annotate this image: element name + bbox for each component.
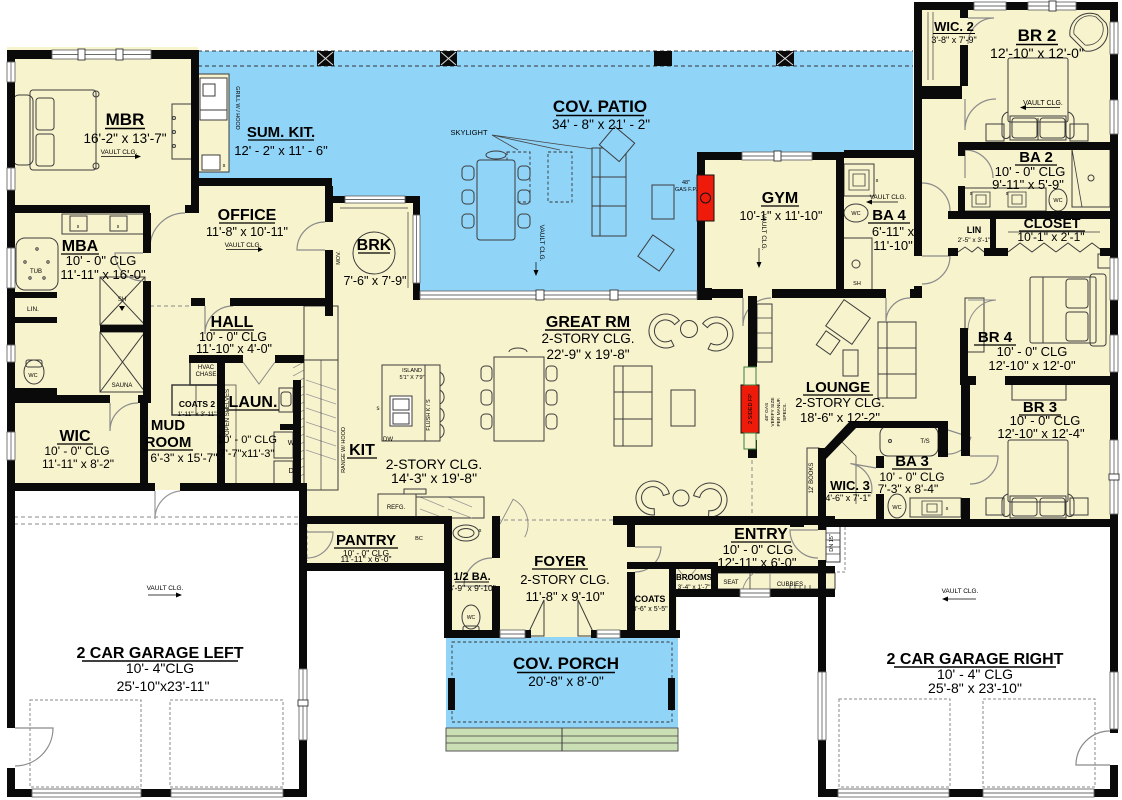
- svg-text:BRK: BRK: [357, 237, 392, 254]
- svg-text:GAS F.P.: GAS F.P.: [675, 187, 697, 193]
- svg-text:WC: WC: [467, 615, 476, 621]
- svg-text:11'-11" x 6'-0": 11'-11" x 6'-0": [340, 554, 391, 564]
- svg-text:VERIFY SIZE: VERIFY SIZE: [770, 397, 776, 426]
- svg-text:CUBBIES: CUBBIES: [777, 582, 803, 588]
- svg-text:10'-1" x 11'-10": 10'-1" x 11'-10": [740, 209, 823, 223]
- svg-text:3'-8" x 7'-9": 3'-8" x 7'-9": [931, 35, 976, 45]
- svg-text:7'-6" x 7'-9": 7'-6" x 7'-9": [344, 274, 407, 288]
- svg-text:14'-3" x 19'-8": 14'-3" x 19'-8": [391, 470, 477, 486]
- svg-text:6'-11" x: 6'-11" x: [872, 224, 915, 239]
- svg-text:GREAT RM: GREAT RM: [546, 314, 630, 331]
- svg-text:s: s: [946, 506, 949, 512]
- svg-text:1'-11" x 3'-11": 1'-11" x 3'-11": [177, 411, 217, 418]
- svg-text:11'-8" x 10'-11": 11'-8" x 10'-11": [206, 225, 288, 239]
- svg-text:9'-11" x 5'-9": 9'-11" x 5'-9": [992, 177, 1064, 192]
- svg-text:12'-10" x 12'-0": 12'-10" x 12'-0": [988, 358, 1076, 373]
- svg-text:34' - 8" x 21' - 2": 34' - 8" x 21' - 2": [552, 117, 650, 132]
- svg-text:COV. PATIO: COV. PATIO: [553, 97, 647, 116]
- svg-text:HALL: HALL: [211, 314, 254, 331]
- svg-text:BC: BC: [415, 536, 423, 542]
- svg-text:SUM. KIT.: SUM. KIT.: [247, 124, 315, 141]
- svg-text:OPEN SHELVES: OPEN SHELVES: [225, 389, 231, 435]
- svg-text:LOUNGE: LOUNGE: [806, 379, 870, 396]
- svg-text:VAULT CLG.: VAULT CLG.: [101, 149, 138, 156]
- svg-text:WIC: WIC: [59, 428, 91, 445]
- svg-text:VAULT CLG.: VAULT CLG.: [538, 225, 545, 262]
- svg-text:BA 3: BA 3: [895, 453, 929, 470]
- svg-text:LAUN.: LAUN.: [229, 394, 278, 411]
- svg-text:16'-2" x 13'-7": 16'-2" x 13'-7": [83, 131, 166, 146]
- svg-text:12'-10" x 12'-4": 12'-10" x 12'-4": [997, 426, 1085, 441]
- svg-text:25'-10"x23'-11": 25'-10"x23'-11": [117, 678, 210, 694]
- svg-text:7'-3" x 8'-4": 7'-3" x 8'-4": [878, 482, 938, 496]
- svg-text:5'1" X 7'9": 5'1" X 7'9": [400, 375, 425, 381]
- svg-text:BR 2: BR 2: [1018, 26, 1057, 45]
- svg-text:11'-11" x 16'-0": 11'-11" x 16'-0": [60, 267, 146, 282]
- svg-text:s: s: [479, 528, 482, 534]
- svg-text:DW: DW: [383, 437, 393, 443]
- svg-text:10' - 0" CLG: 10' - 0" CLG: [66, 253, 137, 268]
- svg-text:D: D: [288, 468, 293, 475]
- svg-text:SPECS.: SPECS.: [782, 403, 788, 421]
- svg-text:FLUSH K / S: FLUSH K / S: [426, 399, 432, 431]
- svg-text:25'-8" x 23'-10": 25'-8" x 23'-10": [928, 680, 1022, 696]
- svg-text:12'-11" x 6'-0": 12'-11" x 6'-0": [718, 555, 797, 570]
- svg-text:CLOSET: CLOSET: [1024, 215, 1081, 231]
- svg-text:WIC. 2: WIC. 2: [934, 19, 974, 34]
- svg-text:48" GAS: 48" GAS: [764, 403, 770, 422]
- svg-text:12' - 2" x 11' - 6": 12' - 2" x 11' - 6": [234, 143, 328, 158]
- svg-text:FOYER: FOYER: [534, 553, 586, 570]
- svg-text:20'-8" x 8'-0": 20'-8" x 8'-0": [528, 674, 604, 689]
- svg-text:ISLAND: ISLAND: [402, 368, 422, 374]
- svg-text:ENTRY: ENTRY: [734, 526, 788, 543]
- svg-text:48": 48": [682, 180, 690, 186]
- svg-text:22'-9" x 19'-8": 22'-9" x 19'-8": [546, 347, 629, 362]
- svg-text:PANTRY: PANTRY: [336, 532, 396, 549]
- svg-text:COV. PORCH: COV. PORCH: [513, 654, 619, 673]
- svg-text:2 SIDED FP: 2 SIDED FP: [748, 394, 754, 424]
- svg-text:11'-11" x 8'-2": 11'-11" x 8'-2": [42, 457, 114, 471]
- svg-text:10' - 0" CLG: 10' - 0" CLG: [997, 344, 1068, 359]
- svg-text:VAULT CLG.: VAULT CLG.: [1023, 100, 1063, 107]
- svg-text:10' - 0" CLG: 10' - 0" CLG: [44, 444, 109, 458]
- svg-text:ROOM: ROOM: [145, 434, 192, 451]
- svg-text:s: s: [876, 178, 879, 184]
- svg-text:1/2 BA.: 1/2 BA.: [453, 571, 490, 583]
- svg-text:12'-10" x 12'-0": 12'-10" x 12'-0": [990, 45, 1084, 61]
- svg-text:WC: WC: [851, 211, 860, 217]
- svg-text:MOV.: MOV.: [336, 251, 342, 265]
- svg-text:BA 4: BA 4: [872, 207, 906, 224]
- svg-text:SH: SH: [853, 281, 861, 287]
- svg-text:WIC. 3: WIC. 3: [830, 478, 870, 493]
- svg-text:11'-8" x 9'-10": 11'-8" x 9'-10": [526, 589, 605, 604]
- svg-text:7'-7"x11'-3": 7'-7"x11'-3": [220, 448, 275, 460]
- svg-text:TUB: TUB: [30, 269, 42, 275]
- svg-text:LIN: LIN: [967, 225, 982, 235]
- svg-text:s: s: [223, 163, 226, 169]
- svg-text:SAUNA: SAUNA: [112, 383, 133, 389]
- svg-text:RANGE W/ HOOD: RANGE W/ HOOD: [341, 427, 347, 473]
- svg-text:3'-4" x 1'-7": 3'-4" x 1'-7": [678, 584, 711, 591]
- svg-text:VAULT CLG.: VAULT CLG.: [870, 194, 907, 201]
- svg-text:GYM: GYM: [762, 190, 798, 207]
- svg-text:DN 15": DN 15": [829, 534, 835, 552]
- svg-text:18'-6" x 12'-2": 18'-6" x 12'-2": [800, 410, 880, 425]
- svg-text:CHASE: CHASE: [196, 372, 217, 378]
- svg-text:WC: WC: [28, 373, 37, 379]
- svg-text:2-STORY CLG.: 2-STORY CLG.: [541, 331, 634, 346]
- svg-text:WC: WC: [1053, 198, 1062, 204]
- svg-text:REFG.: REFG.: [387, 505, 406, 511]
- svg-text:HVAC: HVAC: [198, 365, 215, 371]
- svg-text:10'- 4"CLG: 10'- 4"CLG: [126, 660, 194, 676]
- svg-text:VAULT CLG.: VAULT CLG.: [942, 588, 979, 595]
- svg-text:WC: WC: [892, 505, 901, 511]
- svg-text:BROOMS: BROOMS: [676, 573, 713, 582]
- svg-text:COATS 2: COATS 2: [179, 399, 215, 409]
- svg-text:2-STORY CLG.: 2-STORY CLG.: [520, 572, 610, 587]
- svg-text:2-STORY CLG.: 2-STORY CLG.: [795, 395, 885, 410]
- svg-text:VAULT CLG.: VAULT CLG.: [225, 242, 262, 249]
- svg-text:10'-1" x 2'-1": 10'-1" x 2'-1": [1017, 230, 1084, 244]
- svg-text:11'-10" x 4'-0": 11'-10" x 4'-0": [196, 342, 272, 356]
- svg-text:SKYLIGHT: SKYLIGHT: [450, 128, 488, 137]
- svg-text:KIT: KIT: [349, 442, 375, 459]
- svg-text:COATS: COATS: [635, 594, 666, 604]
- svg-text:2'-5" x 3'-1": 2'-5" x 3'-1": [958, 237, 991, 244]
- svg-text:MUD: MUD: [151, 417, 185, 434]
- svg-text:s: s: [377, 406, 380, 412]
- svg-text:12' BOOKS: 12' BOOKS: [809, 463, 815, 494]
- svg-text:SEAT: SEAT: [723, 580, 739, 586]
- svg-text:11'-10": 11'-10": [873, 238, 913, 253]
- svg-text:4'-6" x 7'-1": 4'-6" x 7'-1": [825, 493, 870, 503]
- svg-text:SH: SH: [118, 297, 126, 303]
- svg-text:T/S: T/S: [920, 439, 929, 445]
- svg-text:PER MANUF.: PER MANUF.: [776, 397, 782, 426]
- svg-text:3'-9" x 9'-10": 3'-9" x 9'-10": [448, 583, 496, 593]
- svg-text:LIN.: LIN.: [27, 306, 39, 313]
- svg-text:VAULT CLG.: VAULT CLG.: [760, 214, 767, 251]
- svg-text:3'-6" x 5'-5": 3'-6" x 5'-5": [632, 606, 668, 613]
- svg-text:MBR: MBR: [106, 110, 145, 129]
- svg-text:W: W: [288, 440, 295, 447]
- svg-text:OFFICE: OFFICE: [218, 207, 277, 224]
- svg-text:VAULT CLG.: VAULT CLG.: [147, 585, 184, 592]
- svg-text:GRILL W / HOOD: GRILL W / HOOD: [234, 86, 240, 130]
- svg-text:6'-3" x 15'-7": 6'-3" x 15'-7": [150, 451, 217, 465]
